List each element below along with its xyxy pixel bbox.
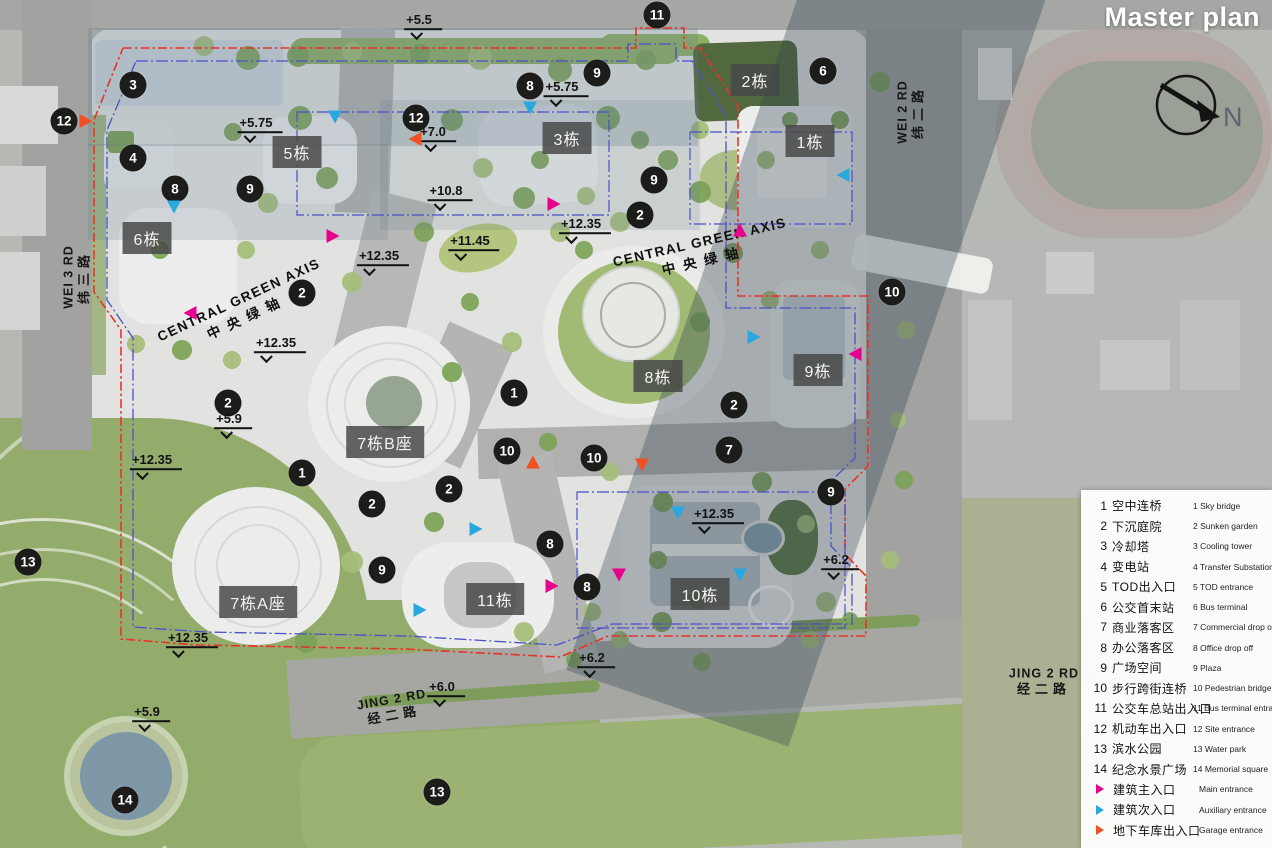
legend-item-en: 8 Office drop off <box>1193 643 1253 653</box>
elevation-value: +12.35 <box>254 336 306 353</box>
map-marker-6: 6 <box>810 58 837 85</box>
elevation-marker: +5.9 <box>132 705 170 730</box>
map-marker-9: 9 <box>818 479 845 506</box>
legend-item-6: 6公交首末站6 Bus terminal <box>1081 598 1272 617</box>
legend-item-13: 13滨水公园13 Water park <box>1081 739 1272 758</box>
elevation-value: +12.35 <box>166 631 218 648</box>
legend-item-4: 4变电站4 Transfer Substation <box>1081 557 1272 576</box>
legend-item-en: 3 Cooling tower <box>1193 541 1252 551</box>
master-plan-canvas: 1栋2栋3栋5栋6栋7栋B座7栋A座8栋9栋10栋11栋312489128911… <box>0 0 1272 848</box>
map-marker-3: 3 <box>120 72 147 99</box>
building-label-9栋: 9栋 <box>794 354 843 386</box>
main-entrance-arrow-icon <box>849 347 862 361</box>
main-entrance-arrow-icon <box>546 579 559 593</box>
legend-item-11: 11公交车总站出入口11 Bus terminal entrance <box>1081 699 1272 718</box>
road-label: WEI 3 RD纬三路 <box>60 245 93 309</box>
legend-entrance-garage: 地下车库出入口Garage entrance <box>1081 821 1272 840</box>
building-label-7栋B座: 7栋B座 <box>346 426 424 458</box>
elevation-marker: +7.0 <box>418 125 456 150</box>
garage-entrance-arrow-icon <box>635 459 649 472</box>
building-label-11栋: 11栋 <box>466 583 524 615</box>
legend-item-number: 13 <box>1090 742 1107 756</box>
north-arrow-head <box>1197 100 1220 122</box>
legend-item-en: 10 Pedestrian bridge <box>1193 683 1271 693</box>
legend-item-zh: 滨水公园 <box>1112 740 1162 757</box>
legend-item-en: 9 Plaza <box>1193 663 1221 673</box>
legend-item-9: 9广场空间9 Plaza <box>1081 658 1272 677</box>
auxiliary-entrance-arrow-icon <box>671 507 685 520</box>
building-label-10栋: 10栋 <box>671 578 730 610</box>
map-marker-13: 13 <box>424 779 451 806</box>
road-label-zh: 纬二路 <box>911 80 928 144</box>
auxiliary-entrance-arrow-icon <box>523 102 537 115</box>
legend: 1空中连桥1 Sky bridge2下沉庭院2 Sunken garden3冷却… <box>1081 490 1272 848</box>
legend-item-number: 4 <box>1090 560 1107 574</box>
elevation-value: +12.35 <box>692 507 744 524</box>
elevation-value: +12.35 <box>130 453 182 470</box>
map-marker-14: 14 <box>112 787 139 814</box>
elevation-value: +11.45 <box>448 234 499 251</box>
auxiliary-entrance-arrow-icon <box>733 569 747 582</box>
road-label: WEI 2 RD纬二路 <box>894 80 927 144</box>
map-marker-2: 2 <box>289 280 316 307</box>
main-entrance-arrow-icon <box>1096 784 1104 794</box>
elevation-value: +5.9 <box>214 412 252 429</box>
legend-item-number: 1 <box>1090 499 1107 513</box>
legend-item-zh: TOD出入口 <box>1112 578 1176 595</box>
legend-item-3: 3冷却塔3 Cooling tower <box>1081 537 1272 556</box>
map-marker-9: 9 <box>369 557 396 584</box>
legend-item-number: 14 <box>1090 762 1107 776</box>
elevation-marker: +5.9 <box>214 412 252 437</box>
road-label-en: WEI 3 RD <box>60 245 76 309</box>
legend-item-number: 9 <box>1090 661 1107 675</box>
auxiliary-entrance-arrow-icon <box>414 603 427 617</box>
auxiliary-entrance-arrow-icon <box>837 168 850 182</box>
building-label-2栋: 2栋 <box>731 64 780 96</box>
road-label-en: WEI 2 RD <box>894 80 910 144</box>
map-marker-2: 2 <box>359 491 386 518</box>
map-marker-9: 9 <box>641 167 668 194</box>
elevation-value: +5.75 <box>544 80 589 97</box>
auxiliary-entrance-arrow-icon <box>328 111 342 124</box>
elevation-value: +6.2 <box>577 651 615 668</box>
legend-item-number: 2 <box>1090 519 1107 533</box>
legend-item-zh: 变电站 <box>1112 558 1150 575</box>
road-label-zh: 经二路 <box>1009 682 1079 699</box>
garage-entrance-arrow-icon <box>409 132 422 146</box>
legend-item-zh: 纪念水景广场 <box>1112 761 1187 778</box>
building-label-7栋A座: 7栋A座 <box>219 586 297 618</box>
map-marker-7: 7 <box>716 437 743 464</box>
legend-item-zh: 步行跨街连桥 <box>1112 680 1187 697</box>
elevation-value: +6.0 <box>427 680 465 697</box>
legend-item-number: 7 <box>1090 620 1107 634</box>
legend-item-number: 8 <box>1090 641 1107 655</box>
elevation-value: +10.8 <box>428 184 473 201</box>
legend-item-1: 1空中连桥1 Sky bridge <box>1081 496 1272 515</box>
road-label: JING 2 RD经二路 <box>1009 665 1079 698</box>
elevation-marker: +10.8 <box>428 184 473 209</box>
legend-item-zh: 广场空间 <box>1112 659 1162 676</box>
elevation-value: +5.5 <box>404 13 442 30</box>
legend-item-zh: 商业落客区 <box>1112 619 1175 636</box>
map-marker-9: 9 <box>237 176 264 203</box>
legend-item-en: 1 Sky bridge <box>1193 501 1240 511</box>
elevation-marker: +12.35 <box>166 631 218 656</box>
map-marker-8: 8 <box>574 574 601 601</box>
elevation-value: +12.35 <box>357 249 409 266</box>
building-label-8栋: 8栋 <box>634 360 683 392</box>
garage-entrance-arrow-icon <box>526 456 540 469</box>
legend-item-number: 3 <box>1090 539 1107 553</box>
legend-item-zh: 建筑次入口 <box>1113 801 1176 818</box>
auxiliary-entrance-arrow-icon <box>470 522 483 536</box>
map-marker-11: 11 <box>644 2 671 29</box>
road-label: JING 2 RD经二路 <box>356 686 431 731</box>
legend-item-en: 7 Commercial drop off <box>1193 622 1272 632</box>
legend-item-en: 6 Bus terminal <box>1193 602 1247 612</box>
legend-item-zh: 冷却塔 <box>1112 538 1150 555</box>
legend-item-zh: 空中连桥 <box>1112 497 1162 514</box>
legend-item-en: Main entrance <box>1199 784 1253 794</box>
legend-item-number: 10 <box>1090 681 1107 695</box>
page-title: Master plan <box>1104 2 1260 33</box>
main-entrance-arrow-icon <box>733 224 747 237</box>
legend-item-8: 8办公落客区8 Office drop off <box>1081 638 1272 657</box>
elevation-marker: +12.35 <box>357 249 409 274</box>
elevation-marker: +5.75 <box>544 80 589 105</box>
legend-item-zh: 公交首末站 <box>1112 599 1175 616</box>
legend-item-14: 14纪念水景广场14 Memorial square <box>1081 760 1272 779</box>
legend-item-12: 12机动车出入口12 Site entrance <box>1081 719 1272 738</box>
elevation-value: +5.75 <box>238 116 283 133</box>
main-entrance-arrow-icon <box>612 569 626 582</box>
auxiliary-entrance-arrow-icon <box>1096 805 1104 815</box>
legend-item-number: 6 <box>1090 600 1107 614</box>
elevation-value: +7.0 <box>418 125 456 142</box>
legend-item-2: 2下沉庭院2 Sunken garden <box>1081 517 1272 536</box>
legend-item-en: 5 TOD entrance <box>1193 582 1253 592</box>
map-marker-10: 10 <box>494 438 521 465</box>
legend-item-en: 12 Site entrance <box>1193 724 1255 734</box>
elevation-marker: +12.35 <box>254 336 306 361</box>
main-entrance-arrow-icon <box>548 197 561 211</box>
legend-item-zh: 建筑主入口 <box>1113 781 1176 798</box>
elevation-marker: +11.45 <box>448 234 499 259</box>
elevation-marker: +6.2 <box>577 651 615 676</box>
garage-entrance-arrow-icon <box>1096 825 1104 835</box>
elevation-marker: +6.0 <box>427 680 465 705</box>
main-entrance-arrow-icon <box>184 306 197 320</box>
elevation-marker: +5.5 <box>404 13 442 38</box>
legend-item-en: 2 Sunken garden <box>1193 521 1258 531</box>
elevation-marker: +5.75 <box>238 116 283 141</box>
road-label-zh: 纬三路 <box>77 245 94 309</box>
legend-item-zh: 下沉庭院 <box>1112 518 1162 535</box>
elevation-marker: +6.2 <box>821 553 859 578</box>
legend-item-en: 4 Transfer Substation <box>1193 562 1272 572</box>
map-marker-13: 13 <box>15 549 42 576</box>
legend-item-number: 12 <box>1090 722 1107 736</box>
map-marker-8: 8 <box>162 176 189 203</box>
legend-item-zh: 机动车出入口 <box>1112 720 1187 737</box>
legend-item-10: 10步行跨街连桥10 Pedestrian bridge <box>1081 679 1272 698</box>
legend-item-7: 7商业落客区7 Commercial drop off <box>1081 618 1272 637</box>
road-label-en: JING 2 RD <box>1009 665 1079 681</box>
legend-item-number: 5 <box>1090 580 1107 594</box>
north-arrow: N <box>1146 64 1258 150</box>
legend-entrance-main: 建筑主入口Main entrance <box>1081 780 1272 799</box>
auxiliary-entrance-arrow-icon <box>167 201 181 214</box>
map-marker-2: 2 <box>436 476 463 503</box>
legend-item-en: Auxiliary entrance <box>1199 805 1267 815</box>
elevation-value: +6.2 <box>821 553 859 570</box>
garage-entrance-arrow-icon <box>80 114 93 128</box>
elevation-value: +12.35 <box>559 217 611 234</box>
map-marker-10: 10 <box>581 445 608 472</box>
legend-item-5: 5TOD出入口5 TOD entrance <box>1081 577 1272 596</box>
map-marker-8: 8 <box>517 73 544 100</box>
main-entrance-arrow-icon <box>327 229 340 243</box>
north-arrow-shaft <box>1161 85 1202 110</box>
map-marker-1: 1 <box>289 460 316 487</box>
map-marker-10: 10 <box>879 279 906 306</box>
legend-entrance-auxiliary: 建筑次入口Auxiliary entrance <box>1081 800 1272 819</box>
auxiliary-entrance-arrow-icon <box>748 330 761 344</box>
legend-item-number: 11 <box>1090 701 1107 715</box>
building-label-6栋: 6栋 <box>123 222 172 254</box>
elevation-marker: +12.35 <box>559 217 611 242</box>
legend-item-zh: 办公落客区 <box>1112 639 1175 656</box>
legend-item-en: 13 Water park <box>1193 744 1246 754</box>
legend-item-en: 14 Memorial square <box>1193 764 1268 774</box>
map-marker-8: 8 <box>537 531 564 558</box>
north-letter: N <box>1223 102 1243 132</box>
legend-item-en: 11 Bus terminal entrance <box>1193 703 1272 713</box>
map-marker-12: 12 <box>51 108 78 135</box>
elevation-marker: +12.35 <box>130 453 182 478</box>
map-marker-1: 1 <box>501 380 528 407</box>
legend-item-en: Garage entrance <box>1199 825 1263 835</box>
map-marker-2: 2 <box>721 392 748 419</box>
building-label-1栋: 1栋 <box>786 125 835 157</box>
map-marker-4: 4 <box>120 145 147 172</box>
elevation-value: +5.9 <box>132 705 170 722</box>
legend-item-zh: 地下车库出入口 <box>1113 822 1201 839</box>
north-circle <box>1157 76 1215 134</box>
elevation-marker: +12.35 <box>692 507 744 532</box>
building-label-3栋: 3栋 <box>543 122 592 154</box>
map-marker-2: 2 <box>627 202 654 229</box>
